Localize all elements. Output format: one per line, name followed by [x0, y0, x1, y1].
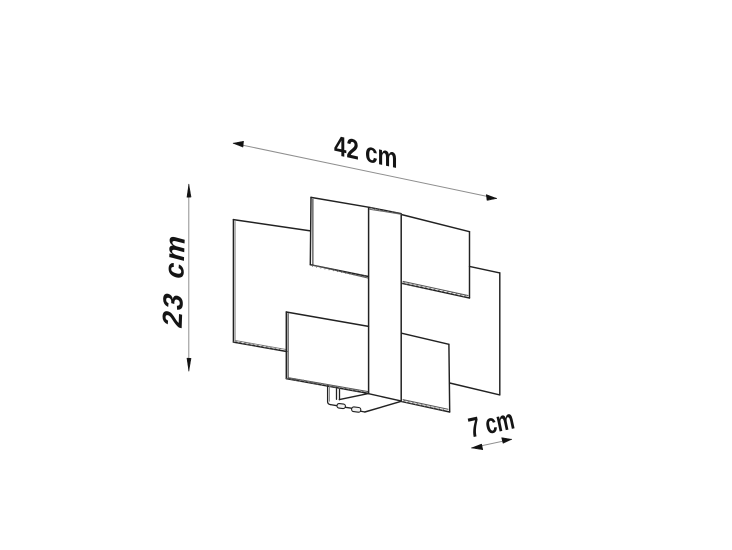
svg-text:7 cm: 7 cm	[466, 404, 517, 444]
svg-text:23 cm: 23 cm	[157, 229, 192, 331]
svg-text:42 cm: 42 cm	[334, 130, 398, 174]
